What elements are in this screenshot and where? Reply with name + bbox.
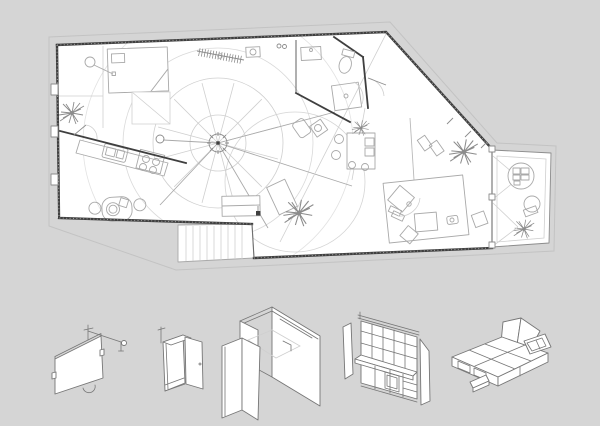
pivot-point	[216, 141, 219, 144]
axon-platform-bed	[452, 318, 551, 392]
drawing-canvas	[0, 0, 600, 426]
stair-paper	[178, 224, 254, 262]
axon-folding-enclosure	[222, 307, 320, 420]
axon-pivoting-wall-panel	[52, 325, 127, 394]
floor-plan	[49, 8, 556, 278]
furniture-axonometrics	[52, 307, 551, 420]
terrace-table	[508, 163, 534, 189]
architectural-drawing	[0, 0, 600, 426]
axon-shelving-unit	[343, 312, 430, 405]
axon-tall-cabinet	[158, 327, 203, 391]
wash-basin-small	[246, 47, 261, 58]
